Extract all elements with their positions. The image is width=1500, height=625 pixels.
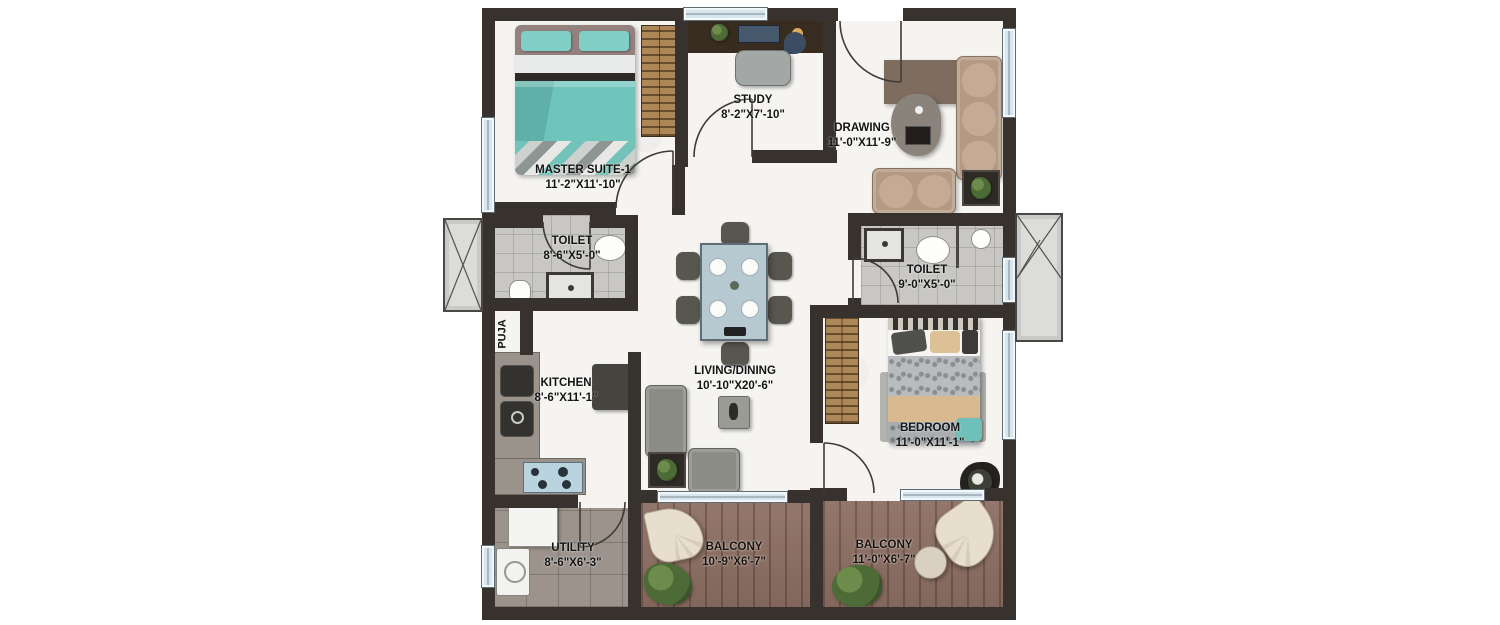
dining-centerpiece <box>730 281 739 290</box>
room-label-toilet-1: TOILET8'-6"X5'-0" <box>543 234 600 264</box>
dining-runner <box>724 327 746 336</box>
wall-stub <box>985 488 1016 501</box>
kitchen-faucet <box>511 411 524 424</box>
living-armchair <box>688 448 740 493</box>
duct-right <box>1015 213 1063 342</box>
bedroom-pillow-tan <box>930 331 960 353</box>
study-chair <box>735 50 791 86</box>
master-bed <box>515 25 635 175</box>
wall <box>482 8 495 117</box>
drawing-plant-stand <box>962 170 1000 206</box>
drawing-coffee-table <box>891 94 941 156</box>
room-label-living-dining: LIVING/DINING10'-10"X20'-6" <box>694 364 776 394</box>
wall-stub <box>788 490 810 503</box>
kitchen-fridge <box>592 364 632 410</box>
wall <box>1003 440 1016 620</box>
side-table-decor <box>729 403 738 420</box>
window-bedroom-right <box>1002 330 1016 440</box>
shower-drain <box>568 285 574 291</box>
master-bed-fold <box>515 73 635 81</box>
living-side-table <box>718 396 750 429</box>
wall <box>482 8 683 21</box>
room-label-master-suite: MASTER SUITE-111'-2"X11'-10" <box>535 163 631 193</box>
bedroom-pillow-dark <box>891 329 928 356</box>
study-task-light <box>784 32 806 54</box>
dining-plate <box>742 301 758 317</box>
kitchen-counter-left <box>494 352 540 464</box>
kitchen-counter-bottom <box>494 458 586 495</box>
wall <box>482 588 495 620</box>
room-label-utility: UTILITY8'-6"X6'-3" <box>544 541 601 571</box>
wall-kitchen-right <box>628 352 641 495</box>
coffee-table-decor <box>915 106 923 114</box>
duct-left <box>443 218 483 312</box>
window-master-left <box>481 117 495 213</box>
toilet-2-shower <box>864 228 904 262</box>
hob-burner <box>538 480 547 489</box>
wall-puja-niche <box>520 311 533 355</box>
wall-utility-balcony-divider <box>628 495 641 620</box>
wall-stub <box>823 488 847 501</box>
wall-stub <box>641 490 657 503</box>
dining-plate <box>710 301 726 317</box>
wall-master-study-divider <box>675 21 688 167</box>
toilet-2-basin <box>971 229 991 249</box>
floor-plan-canvas: MASTER SUITE-111'-2"X11'-10" STUDY8'-2"X… <box>0 0 1500 625</box>
room-label-balcony-1: BALCONY10'-9"X6'-7" <box>702 540 766 570</box>
kitchen-hob <box>523 462 583 493</box>
room-label-bedroom: BEDROOM11'-0"X11'-1" <box>896 421 965 451</box>
wall-bedroom-left <box>810 318 823 443</box>
sliding-window-bedroom-balcony <box>900 489 985 501</box>
wall <box>768 8 838 21</box>
wall-jamb <box>672 165 685 215</box>
wall-drawing-bottom <box>848 213 1003 226</box>
dining-plate <box>710 259 726 275</box>
wall <box>1003 8 1016 28</box>
window-utility-left <box>481 545 495 588</box>
wall-toilet-1-bottom <box>482 298 638 311</box>
study-plant <box>711 24 728 41</box>
balcony-2-plant <box>832 565 882 607</box>
room-label-puja: PUJA <box>497 319 509 348</box>
kitchen-sink-upper <box>500 365 534 397</box>
sliding-door-living-balcony <box>657 491 788 503</box>
coffee-table-tray <box>905 126 931 145</box>
living-plant <box>657 459 677 481</box>
wall-utility-top <box>482 495 578 508</box>
dining-chair <box>676 252 700 280</box>
sofa-cushion <box>879 175 913 208</box>
hob-burner <box>562 480 571 489</box>
bedroom-pillow-accent <box>962 330 978 354</box>
room-label-drawing: DRAWING11'-0"X11'-9" <box>828 121 897 151</box>
room-label-kitchen: KITCHEN8'-6"X11'-1" <box>534 376 597 406</box>
balcony-2-table <box>914 546 947 579</box>
study-laptop <box>738 25 780 43</box>
window-study-top <box>683 7 768 21</box>
sofa-cushion <box>962 63 996 97</box>
master-bed-duvet <box>515 81 635 141</box>
dining-table <box>700 243 768 341</box>
dining-chair <box>721 342 749 366</box>
wall-bedroom-top <box>810 305 1016 318</box>
sofa-cushion <box>917 175 951 208</box>
hob-burner <box>558 467 568 477</box>
room-label-balcony-2: BALCONY11'-0"X6'-7" <box>852 538 915 568</box>
wall-toilet-2-left-upper <box>848 226 861 260</box>
toilet-2-wc <box>916 236 950 264</box>
wall-master-bottom <box>482 202 616 215</box>
master-wardrobe <box>641 25 678 137</box>
drawing-sofa-long <box>956 56 1002 180</box>
dining-plate <box>742 259 758 275</box>
toilet-2-partition <box>956 226 959 268</box>
drawing-plant <box>971 177 991 199</box>
window-toilet-2-right <box>1002 257 1016 303</box>
living-sofa <box>645 385 687 457</box>
bedroom-duvet-gray <box>888 356 980 396</box>
wall-toilet-1-right <box>625 215 638 311</box>
shower-drain <box>882 241 888 247</box>
washer-door <box>504 561 526 583</box>
utility-washing-machine <box>496 548 530 596</box>
room-label-toilet-2: TOILET9'-0"X5'-0" <box>898 263 955 293</box>
bedroom-headboard <box>888 316 980 330</box>
wall <box>482 607 1016 620</box>
window-drawing-right <box>1002 28 1016 118</box>
master-bed-sheet <box>515 55 635 73</box>
wall-balcony-divider <box>810 488 823 620</box>
hob-burner <box>531 468 539 476</box>
living-plant-stand <box>648 452 686 488</box>
dining-chair <box>768 296 792 324</box>
dining-chair <box>768 252 792 280</box>
sofa-cushion <box>962 102 996 136</box>
master-bed-pillow-right <box>579 31 629 51</box>
room-label-study: STUDY8'-2"X7'-10" <box>721 93 785 123</box>
wall <box>903 8 1016 21</box>
dining-chair <box>676 296 700 324</box>
bedroom-wardrobe <box>825 310 859 424</box>
drawing-sofa-two-seat <box>872 168 956 214</box>
master-bed-pillow-left <box>521 31 571 51</box>
wall-toilet-1-top-a <box>494 215 543 228</box>
